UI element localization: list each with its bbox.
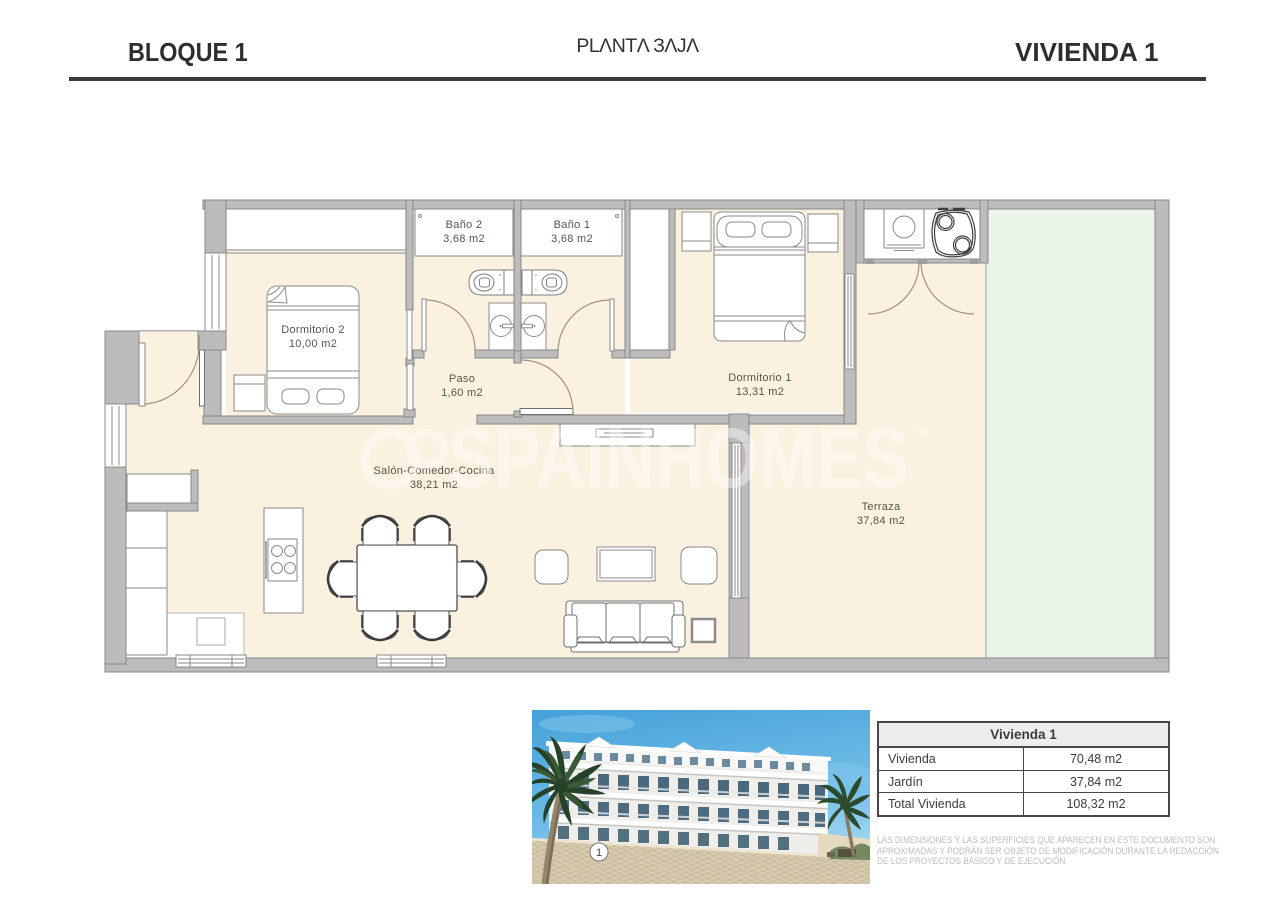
svg-text:Baño 2: Baño 2: [446, 219, 483, 231]
svg-text:TM: TM: [912, 427, 928, 439]
svg-text:10,00 m2: 10,00 m2: [289, 338, 337, 350]
svg-text:37,84 m2: 37,84 m2: [857, 515, 905, 527]
svg-text:Dormitorio 1: Dormitorio 1: [728, 372, 792, 384]
svg-text:SPAINHOMES: SPAINHOMES: [448, 411, 909, 505]
svg-text:3,68 m2: 3,68 m2: [551, 233, 593, 245]
svg-text:Paso: Paso: [449, 373, 475, 385]
svg-text:Baño 1: Baño 1: [554, 219, 591, 231]
svg-text:3,68 m2: 3,68 m2: [443, 233, 485, 245]
svg-text:13,31 m2: 13,31 m2: [736, 386, 784, 398]
svg-text:1: 1: [596, 847, 602, 859]
svg-text:Dormitorio 2: Dormitorio 2: [281, 324, 345, 336]
svg-text:1,60 m2: 1,60 m2: [441, 387, 483, 399]
